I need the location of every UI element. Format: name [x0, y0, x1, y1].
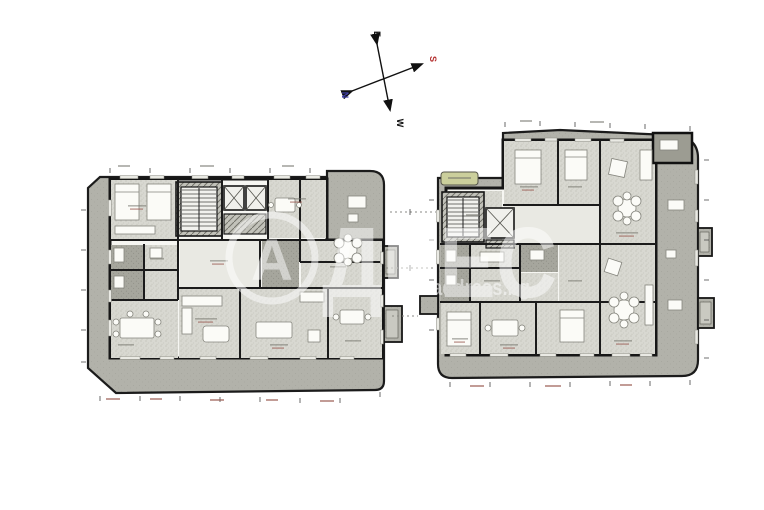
left-stairwell	[176, 182, 222, 236]
compass-axis-north-south	[352, 64, 422, 91]
compass-east-label: E	[372, 31, 382, 37]
compass-south-label: S	[428, 56, 438, 62]
floor-plan-page: E W N S	[0, 0, 764, 510]
highlighted-unit-label	[448, 177, 471, 179]
watermark-brand-text: ДРЕС	[322, 207, 557, 319]
watermark-logo-letter: А	[251, 228, 293, 293]
compass-rose: E W N S	[340, 31, 438, 128]
compass-north-label: N	[340, 92, 350, 99]
watermark-website-text: address.bg	[432, 275, 530, 300]
storage-room-furniture	[660, 140, 678, 150]
compass-west-label: W	[395, 119, 405, 128]
floor-plan-drawing: E W N S	[0, 0, 764, 510]
